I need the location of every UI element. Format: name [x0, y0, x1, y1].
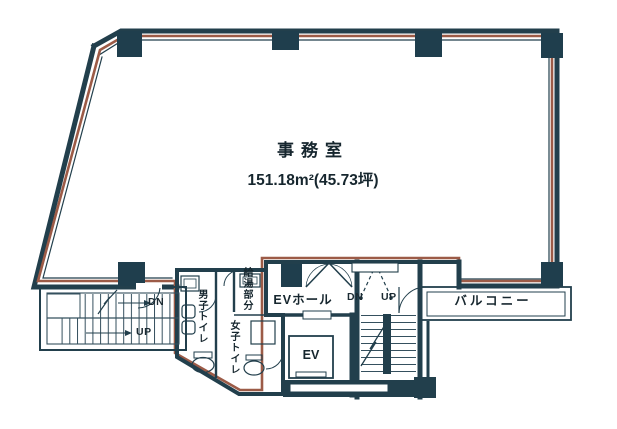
column: [281, 262, 302, 287]
left-staircase: [40, 283, 186, 350]
stair-center-rail: [383, 314, 391, 374]
urinal: [182, 321, 195, 334]
ev-door-mark: [303, 311, 331, 319]
stair-landing: [47, 294, 80, 318]
balcony-label: バルコニー: [433, 295, 553, 309]
office-area-label: 151.18m²(45.73坪): [213, 172, 413, 189]
floor-plan-canvas: 事務室 151.18m²(45.73坪) EVホール EV バルコニー 男子トイ…: [0, 0, 617, 429]
column: [117, 31, 142, 57]
double-door: [306, 263, 352, 287]
elevator-sill: [296, 372, 326, 377]
right-stair-dn-label: DN: [347, 292, 363, 304]
left-stair-dn-label: DN: [148, 297, 164, 309]
column: [272, 31, 299, 50]
ev-hall-label: EVホール: [261, 294, 345, 308]
right-staircase: [352, 263, 426, 377]
wall-left-diagonal: [34, 46, 177, 287]
left-stair-up-label: UP: [136, 327, 152, 339]
floor-plan-drawing: [0, 0, 617, 429]
door-arc: [224, 270, 240, 286]
ev-hall: [306, 263, 352, 287]
elevator-label: EV: [291, 349, 331, 363]
right-stair-up-label: UP: [381, 292, 397, 304]
womens-toilet-label: 女子トイレ: [228, 320, 239, 375]
elevator-shaft: [289, 311, 333, 378]
mens-toilet-label: 男子トイレ: [196, 289, 207, 344]
urinal: [182, 305, 195, 318]
double-door-swing: [306, 264, 352, 287]
column: [415, 31, 442, 57]
stair-exterior-foot: [414, 377, 436, 398]
toilet-tank: [246, 355, 262, 360]
door-gap: [136, 283, 162, 291]
shaft-box: [352, 263, 398, 272]
door-arc: [266, 352, 283, 369]
hot-water-label: 給湯部分: [241, 267, 252, 311]
core-bottom-channel: [290, 384, 388, 392]
column: [541, 33, 563, 58]
column: [541, 262, 563, 287]
office-name-label: 事務室: [243, 142, 383, 161]
